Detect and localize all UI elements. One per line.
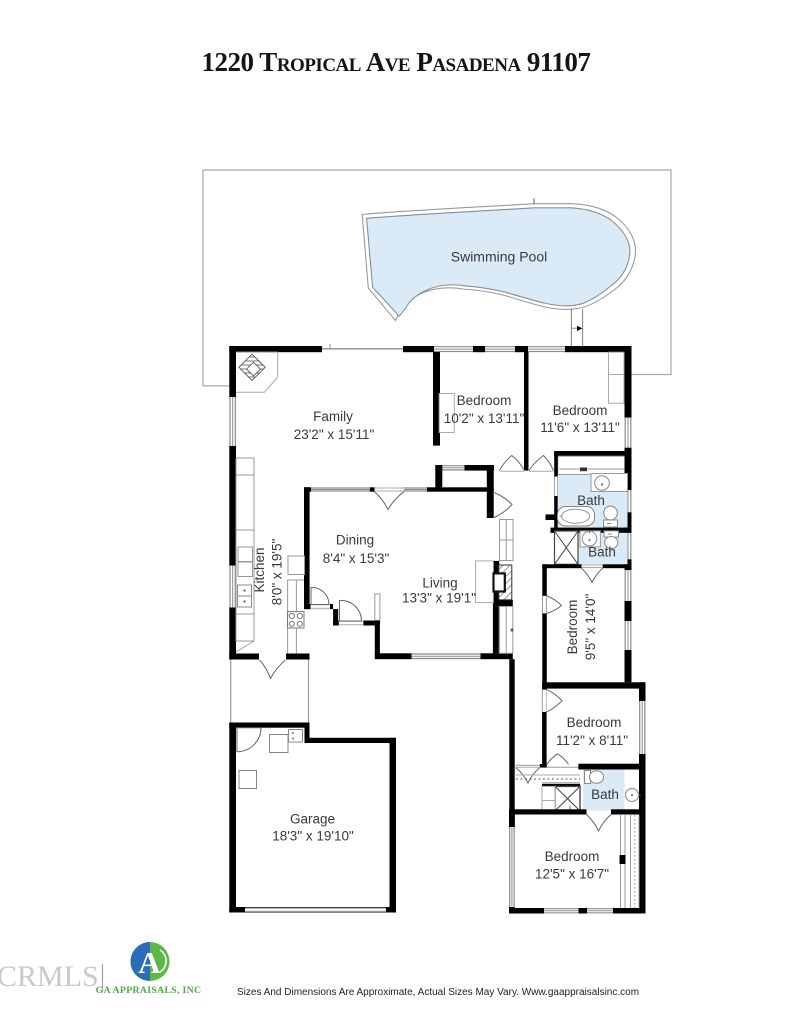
- svg-text:Bedroom: Bedroom: [545, 849, 600, 864]
- svg-text:GA APPRAISALS, INC: GA APPRAISALS, INC: [96, 985, 202, 996]
- svg-text:1220 Tropical Ave Pasadena 911: 1220 Tropical Ave Pasadena 91107: [202, 47, 591, 77]
- svg-text:Dining: Dining: [336, 533, 374, 548]
- svg-text:Bath: Bath: [577, 493, 605, 508]
- svg-text:13'3" x 19'1": 13'3" x 19'1": [402, 591, 476, 606]
- svg-text:Bath: Bath: [588, 545, 616, 560]
- svg-text:A: A: [138, 945, 161, 980]
- svg-text:10'2" x 13'11": 10'2" x 13'11": [444, 411, 525, 426]
- svg-text:8'4" x 15'3": 8'4" x 15'3": [323, 551, 390, 566]
- svg-text:Garage: Garage: [290, 812, 335, 827]
- svg-text:Bath: Bath: [591, 787, 619, 802]
- svg-text:Bedroom: Bedroom: [553, 403, 608, 418]
- svg-text:Living: Living: [422, 576, 457, 591]
- svg-text:Family: Family: [313, 409, 353, 424]
- svg-text:8'0" x 19'5": 8'0" x 19'5": [270, 539, 285, 606]
- svg-text:Bedroom: Bedroom: [457, 393, 512, 408]
- svg-text:Kitchen: Kitchen: [252, 547, 267, 592]
- svg-text:Bedroom: Bedroom: [565, 600, 580, 655]
- svg-text:11'2" x 8'11": 11'2" x 8'11": [556, 733, 628, 748]
- svg-text:Bedroom: Bedroom: [567, 715, 622, 730]
- svg-text:9'5" x 14'0": 9'5" x 14'0": [583, 594, 598, 661]
- svg-text:23'2" x 15'11": 23'2" x 15'11": [294, 427, 375, 442]
- svg-text:12'5" x 16'7": 12'5" x 16'7": [535, 867, 609, 882]
- svg-text:Swimming Pool: Swimming Pool: [451, 249, 547, 265]
- svg-text:CRMLS: CRMLS: [0, 960, 99, 993]
- svg-text:Sizes And Dimensions Are Appro: Sizes And Dimensions Are Approximate, Ac…: [237, 987, 639, 998]
- svg-text:18'3" x 19'10": 18'3" x 19'10": [272, 829, 354, 844]
- svg-text:11'6" x 13'11": 11'6" x 13'11": [540, 420, 620, 435]
